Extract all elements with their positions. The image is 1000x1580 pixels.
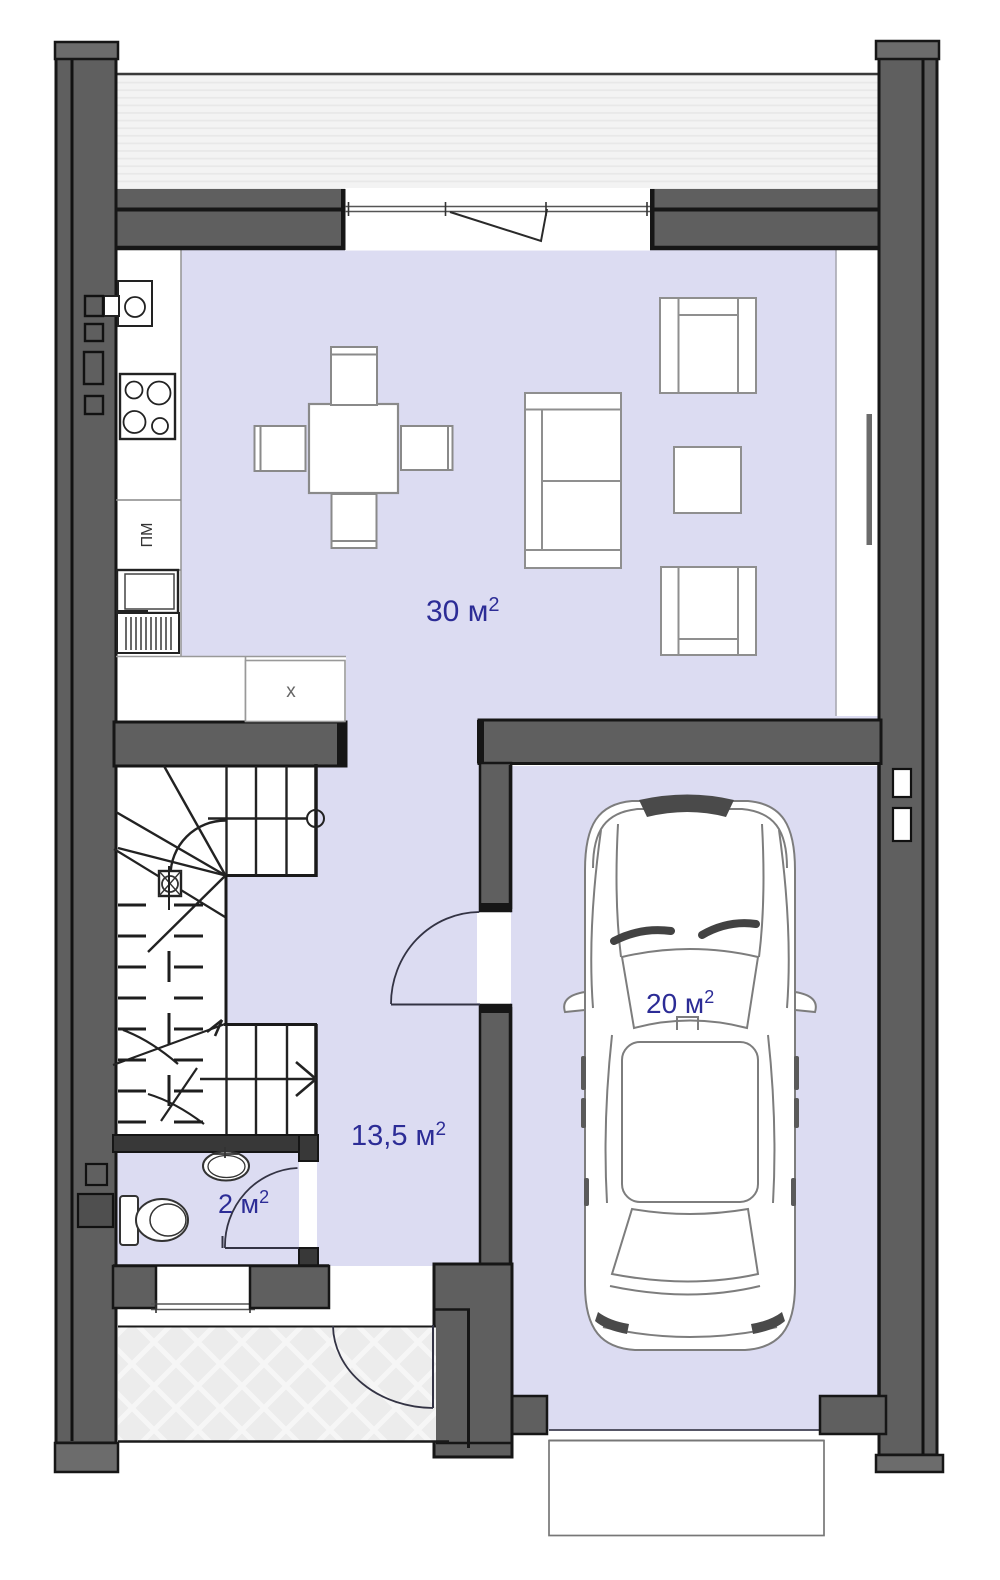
svg-text:ПМ: ПМ bbox=[139, 523, 156, 548]
svg-text:13,5 м2: 13,5 м2 bbox=[351, 1119, 446, 1152]
svg-text:20 м2: 20 м2 bbox=[646, 987, 714, 1019]
svg-text:х: х bbox=[286, 681, 296, 702]
